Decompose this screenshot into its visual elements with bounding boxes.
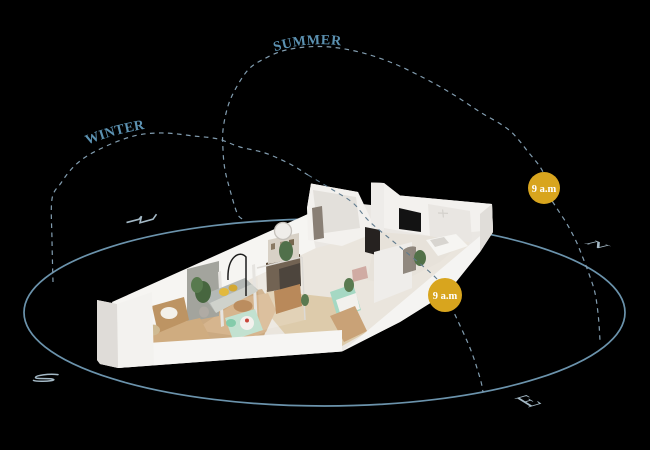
svg-text:9 a.m: 9 a.m xyxy=(433,291,458,302)
svg-text:E: E xyxy=(508,391,548,411)
svg-text:WINTER: WINTER xyxy=(83,118,146,149)
svg-text:SUMMER: SUMMER xyxy=(272,33,343,55)
svg-text:9 a.m: 9 a.m xyxy=(532,184,557,195)
svg-text:N: N xyxy=(580,239,616,250)
